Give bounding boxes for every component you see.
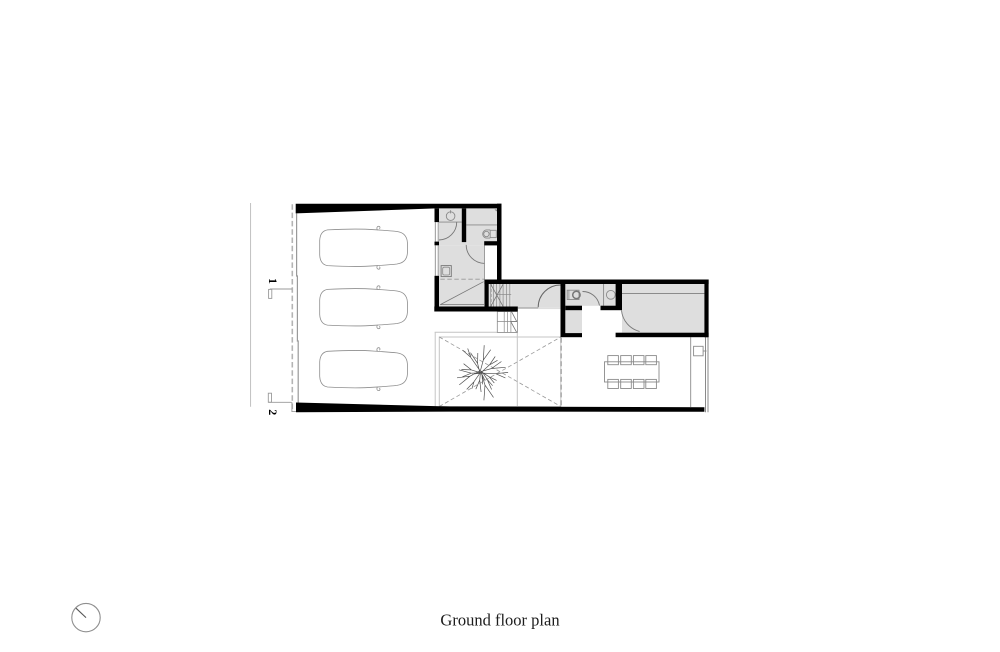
svg-text:2: 2 — [266, 409, 280, 415]
svg-text:Ground floor plan: Ground floor plan — [440, 611, 559, 630]
svg-text:1: 1 — [266, 278, 280, 284]
